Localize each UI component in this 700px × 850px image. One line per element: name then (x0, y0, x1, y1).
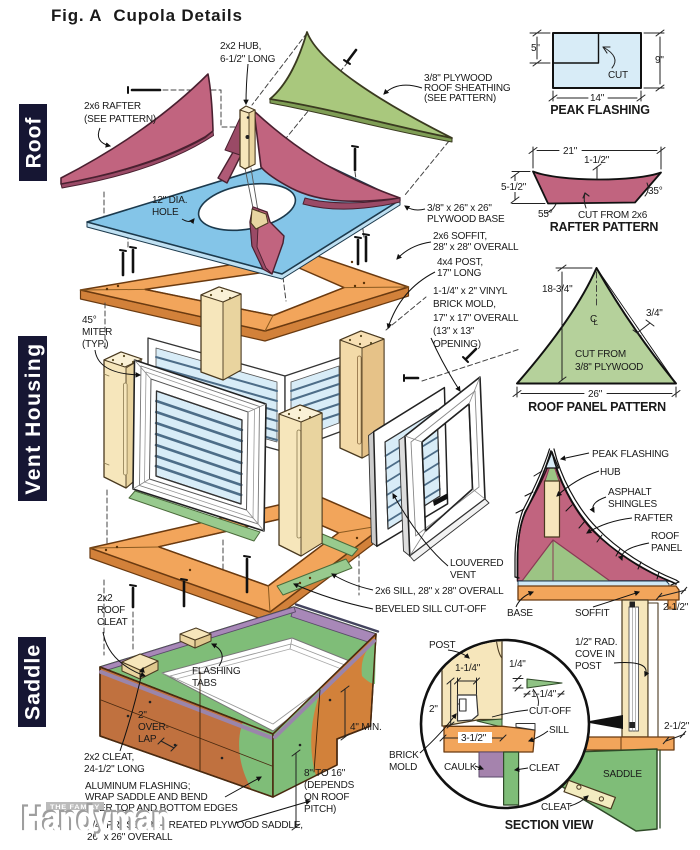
svg-text:55°: 55° (538, 209, 553, 220)
svg-text:POST: POST (429, 640, 456, 651)
svg-text:BASE: BASE (507, 608, 533, 619)
svg-text:CLEAT: CLEAT (541, 802, 572, 813)
svg-text:1-1/4": 1-1/4" (531, 689, 557, 700)
svg-text:(SEE PATTERN): (SEE PATTERN) (424, 93, 496, 104)
svg-text:18-3/4": 18-3/4" (542, 284, 573, 295)
svg-text:1-1/2": 1-1/2" (584, 155, 610, 166)
svg-text:24-1/2" LONG: 24-1/2" LONG (84, 764, 145, 775)
svg-text:CAULK: CAULK (444, 762, 477, 773)
svg-text:Saddle: Saddle (21, 644, 45, 721)
svg-text:RAFTER PATTERN: RAFTER PATTERN (550, 220, 659, 234)
svg-text:HOLE: HOLE (152, 207, 179, 218)
svg-text:SECTION VIEW: SECTION VIEW (505, 818, 594, 832)
svg-text:2": 2" (138, 710, 147, 721)
svg-text:CUT-OFF: CUT-OFF (529, 706, 571, 717)
svg-text:26": 26" (588, 389, 603, 400)
svg-text:6-1/2" LONG: 6-1/2" LONG (220, 54, 276, 65)
svg-text:2x6 RAFTER: 2x6 RAFTER (84, 101, 141, 112)
svg-text:ON ROOF: ON ROOF (304, 792, 349, 803)
svg-text:17" x 17" OVERALL: 17" x 17" OVERALL (433, 313, 519, 324)
svg-text:PANEL: PANEL (651, 543, 683, 554)
svg-text:28" x 28" OVERALL: 28" x 28" OVERALL (433, 242, 519, 253)
svg-text:CUT FROM: CUT FROM (575, 349, 626, 360)
svg-text:LOUVERED: LOUVERED (450, 558, 503, 569)
svg-text:9": 9" (655, 55, 664, 66)
svg-text:8" TO 16": 8" TO 16" (304, 768, 346, 779)
svg-text:21": 21" (563, 146, 578, 157)
svg-text:2x2 HUB,: 2x2 HUB, (220, 41, 261, 52)
svg-text:SILL: SILL (549, 725, 569, 736)
svg-text:Handyman: Handyman (23, 801, 171, 839)
svg-text:TABS: TABS (192, 678, 217, 689)
svg-text:(13" x 13": (13" x 13" (433, 326, 475, 337)
svg-text:ALUMINUM FLASHING;: ALUMINUM FLASHING; (85, 781, 190, 792)
svg-text:2x2 CLEAT,: 2x2 CLEAT, (84, 752, 134, 763)
svg-text:OPENING): OPENING) (433, 339, 481, 350)
svg-text:2-1/2": 2-1/2" (664, 721, 690, 732)
svg-text:HUB: HUB (600, 467, 621, 478)
svg-text:SADDLE: SADDLE (603, 769, 642, 780)
svg-text:BEVELED SILL CUT-OFF: BEVELED SILL CUT-OFF (375, 604, 486, 615)
svg-text:1-1/4" x 2" VINYL: 1-1/4" x 2" VINYL (433, 286, 508, 297)
svg-text:2x6 SOFFIT,: 2x6 SOFFIT, (433, 231, 487, 242)
svg-text:CUT: CUT (608, 70, 628, 81)
svg-text:35°: 35° (648, 186, 663, 197)
svg-text:3/8" x 26" x 26": 3/8" x 26" x 26" (427, 203, 492, 214)
svg-text:SHINGLES: SHINGLES (608, 499, 658, 510)
svg-text:FLASHING: FLASHING (192, 666, 241, 677)
svg-text:2x2: 2x2 (97, 593, 113, 604)
svg-text:Roof: Roof (23, 117, 46, 169)
svg-text:SOFFIT: SOFFIT (575, 608, 609, 619)
svg-text:CLEAT: CLEAT (529, 763, 560, 774)
svg-text:COVE IN: COVE IN (575, 649, 615, 660)
svg-text:MITER: MITER (82, 327, 112, 338)
svg-text:5": 5" (531, 43, 540, 54)
svg-text:POST: POST (575, 661, 602, 672)
svg-text:4" MIN.: 4" MIN. (350, 722, 382, 733)
svg-text:BRICK MOLD,: BRICK MOLD, (433, 299, 496, 310)
svg-text:2x6 SILL, 28" x 28" OVERALL: 2x6 SILL, 28" x 28" OVERALL (375, 586, 504, 597)
svg-text:ROOF: ROOF (651, 531, 679, 542)
svg-text:3-1/2": 3-1/2" (461, 733, 487, 744)
svg-text:4x4 POST,: 4x4 POST, (437, 257, 483, 268)
svg-text:(TYP.): (TYP.) (82, 339, 108, 350)
svg-text:1-1/4": 1-1/4" (455, 663, 481, 674)
svg-text:BRICK: BRICK (389, 750, 419, 761)
svg-text:LAP: LAP (138, 734, 157, 745)
svg-text:3/8" PLYWOOD: 3/8" PLYWOOD (575, 362, 643, 373)
svg-text:45°: 45° (82, 315, 97, 326)
svg-text:PLYWOOD BASE: PLYWOOD BASE (427, 214, 505, 225)
svg-text:PEAK FLASHING: PEAK FLASHING (592, 449, 669, 460)
svg-text:ASPHALT: ASPHALT (608, 487, 652, 498)
svg-text:PITCH): PITCH) (304, 804, 336, 815)
svg-text:OVER-: OVER- (138, 722, 169, 733)
svg-text:(DEPENDS: (DEPENDS (304, 780, 355, 791)
svg-text:ROOF: ROOF (97, 605, 125, 616)
svg-text:Vent Housing: Vent Housing (22, 342, 45, 494)
svg-text:1/2" RAD.: 1/2" RAD. (575, 637, 617, 648)
svg-text:MOLD: MOLD (389, 762, 417, 773)
svg-text:CLEAT: CLEAT (97, 617, 128, 628)
svg-text:12" DIA.: 12" DIA. (152, 195, 187, 206)
svg-text:PEAK FLASHING: PEAK FLASHING (550, 103, 650, 117)
svg-text:2-1/2": 2-1/2" (663, 602, 689, 613)
svg-text:1/4": 1/4" (509, 659, 526, 670)
svg-text:3/4": 3/4" (646, 308, 663, 319)
svg-text:RAFTER: RAFTER (634, 513, 673, 524)
svg-text:VENT: VENT (450, 570, 476, 581)
svg-text:5-1/2": 5-1/2" (501, 182, 527, 193)
svg-text:17" LONG: 17" LONG (437, 268, 482, 279)
svg-text:2": 2" (429, 704, 438, 715)
svg-text:Fig. A Cupola Details: Fig. A Cupola Details (51, 6, 243, 25)
svg-text:ROOF PANEL PATTERN: ROOF PANEL PATTERN (528, 400, 666, 414)
svg-text:(SEE PATTERN): (SEE PATTERN) (84, 114, 156, 125)
